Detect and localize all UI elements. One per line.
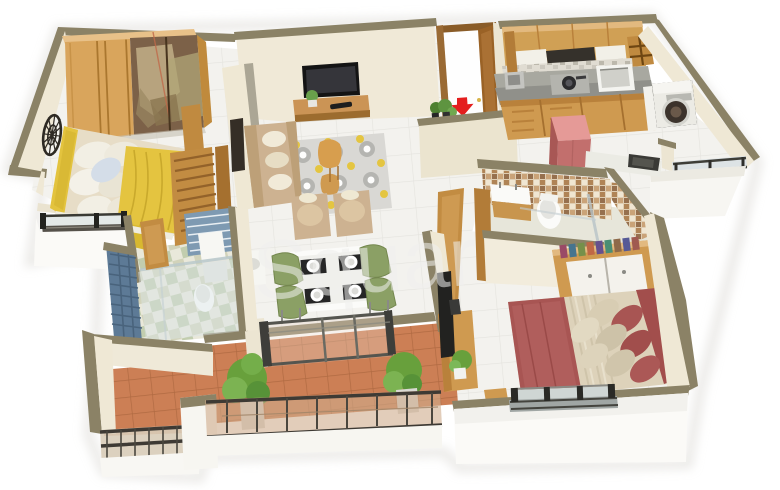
svg-text:Squar: Squar xyxy=(250,209,480,318)
